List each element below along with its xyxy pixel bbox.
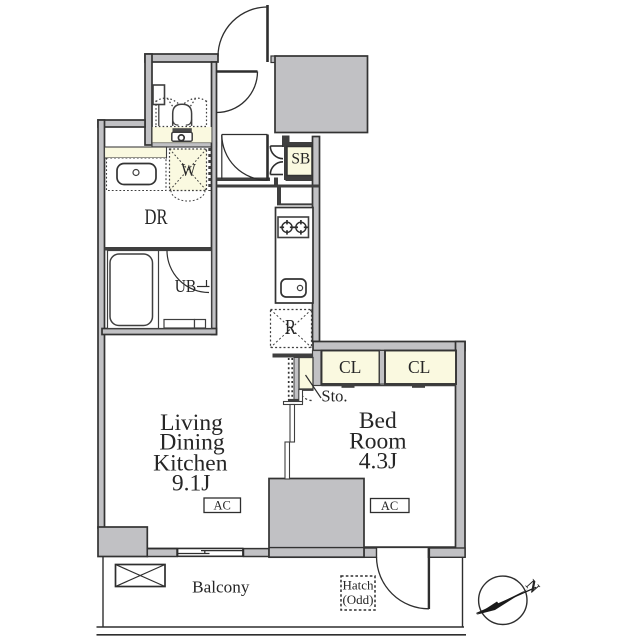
svg-text:R: R (285, 315, 296, 339)
svg-text:Balcony: Balcony (192, 577, 250, 596)
svg-text:CL: CL (339, 357, 361, 377)
svg-text:Sto.: Sto. (321, 387, 347, 406)
svg-text:AC: AC (214, 499, 231, 513)
svg-text:9.1J: 9.1J (172, 470, 211, 496)
svg-text:AC: AC (381, 499, 398, 513)
svg-text:4.3J: 4.3J (359, 448, 398, 474)
svg-text:CL: CL (408, 357, 430, 377)
svg-text:(Odd): (Odd) (342, 592, 373, 607)
svg-text:UB: UB (175, 276, 197, 296)
svg-text:SB: SB (291, 151, 310, 168)
svg-text:W: W (181, 160, 196, 180)
svg-text:DR: DR (145, 204, 168, 229)
svg-text:Hatch: Hatch (342, 578, 374, 593)
